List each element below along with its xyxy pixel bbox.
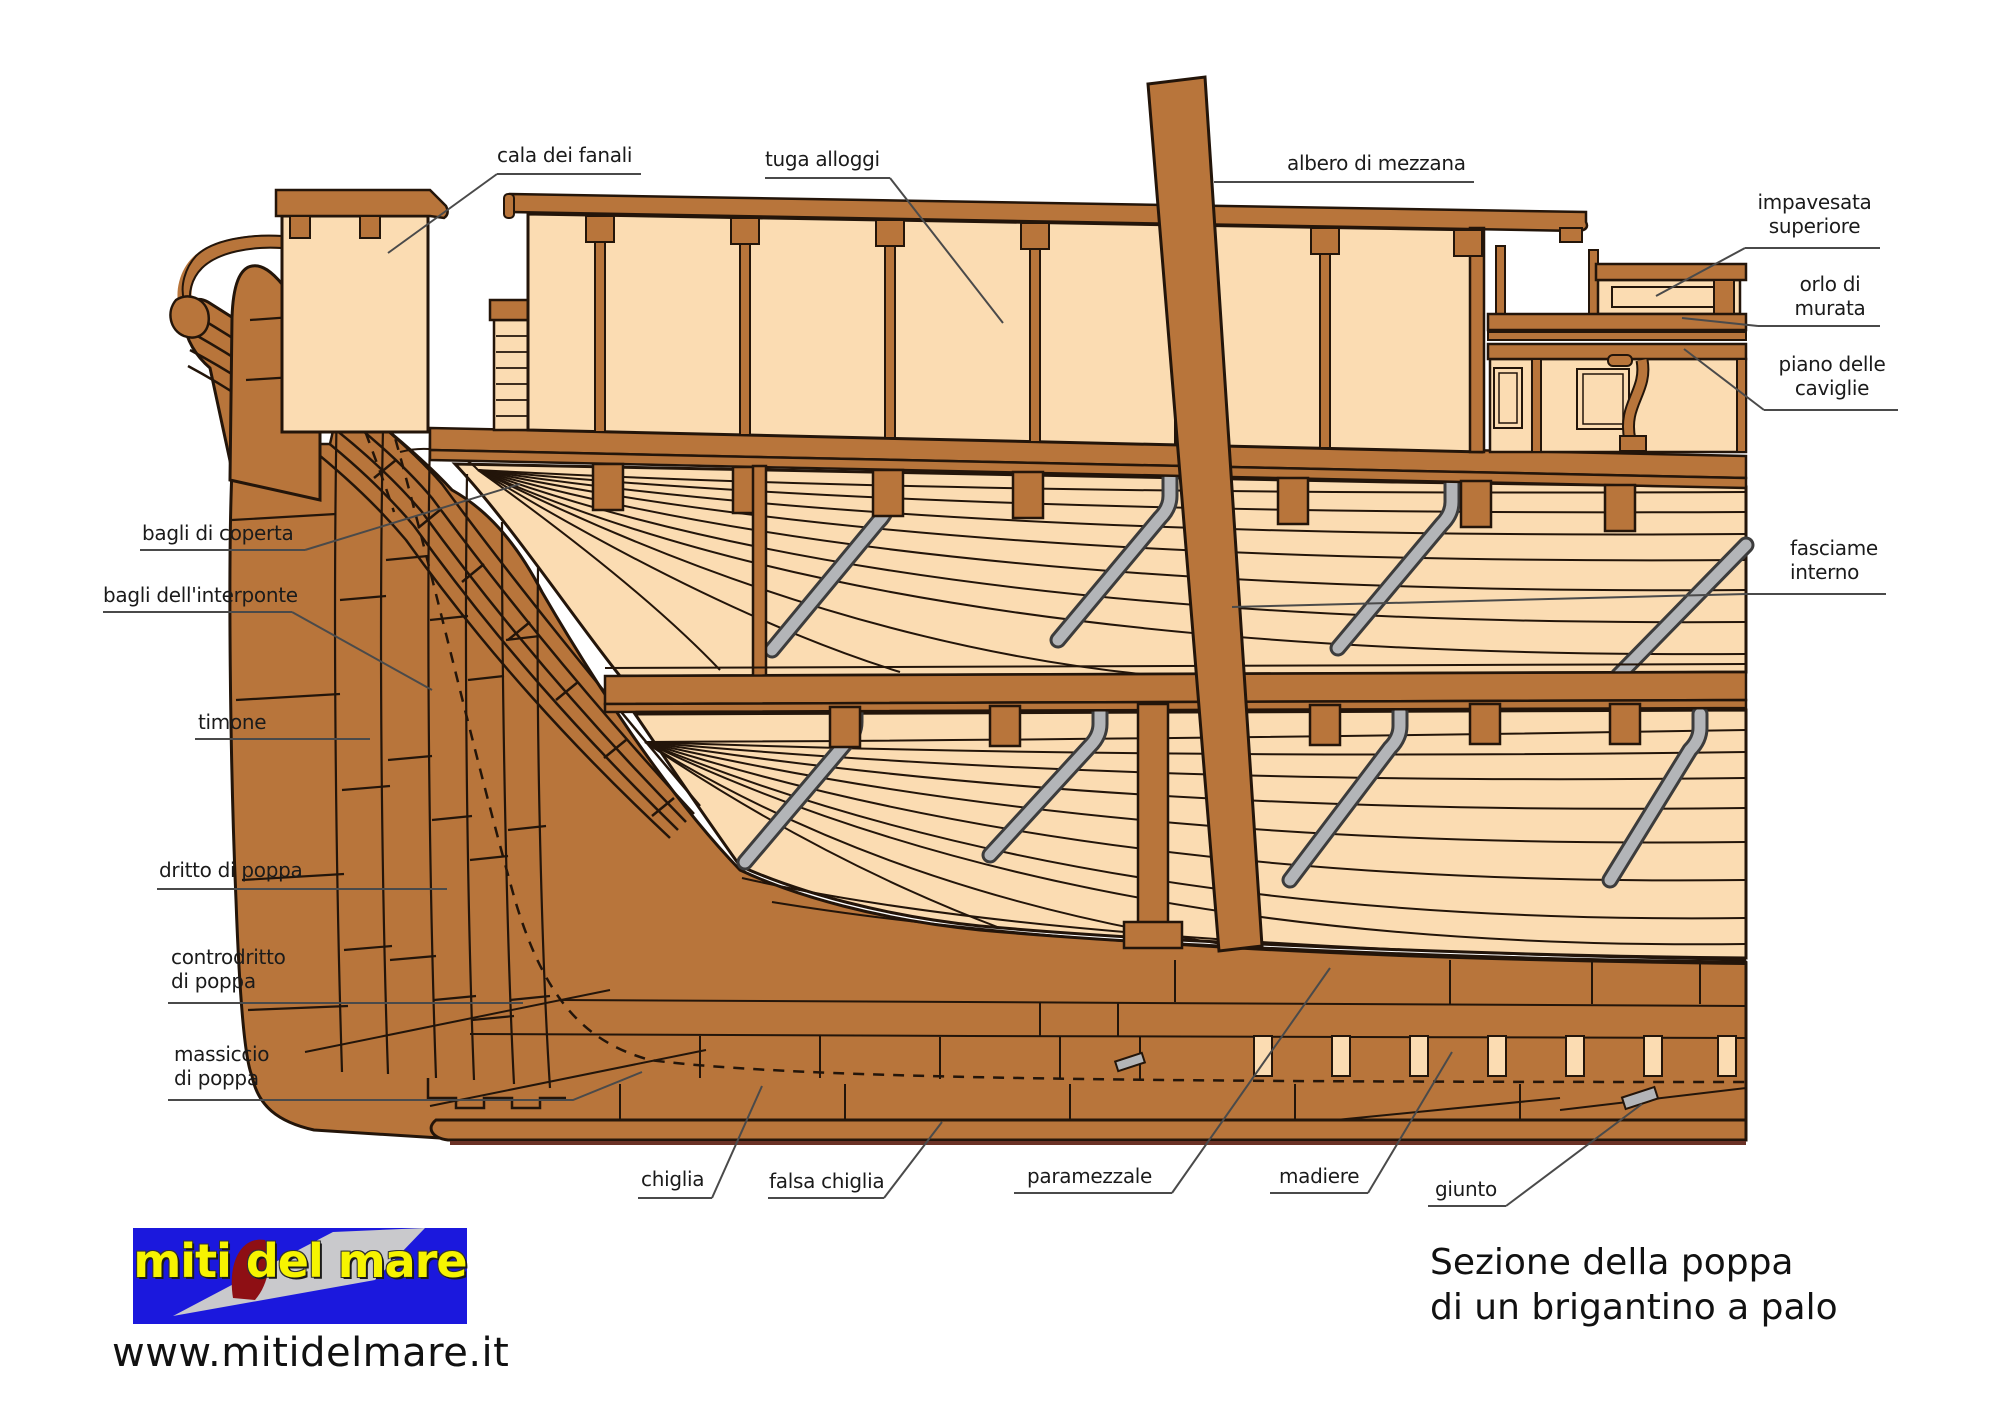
deckhouse-tuga-alloggi: [504, 194, 1587, 452]
cabin-cala-dei-fanali: [276, 190, 448, 432]
label-cala-dei-fanali: cala dei fanali: [497, 143, 632, 167]
diagram-page: cala dei fanali tuga alloggi albero di m…: [0, 0, 2000, 1418]
orlo-di-murata-band: [1488, 314, 1746, 340]
label-giunto: giunto: [1435, 1177, 1497, 1201]
label-falsa-chiglia: falsa chiglia: [769, 1169, 884, 1193]
label-fasciame-interno: fasciame interno: [1790, 536, 1878, 585]
label-albero-di-mezzana: albero di mezzana: [1287, 151, 1466, 175]
falsa-chiglia-strip: [431, 1120, 1746, 1140]
label-timone: timone: [198, 710, 266, 734]
diagram-title: Sezione della poppa di un brigantino a p…: [1430, 1240, 1838, 1330]
label-massiccio-di-poppa: massiccio di poppa: [174, 1042, 269, 1091]
label-chiglia: chiglia: [641, 1167, 704, 1191]
stern-horn: [170, 296, 208, 337]
logo-text: miti del mare: [133, 1234, 467, 1288]
label-dritto-di-poppa: dritto di poppa: [159, 858, 302, 882]
label-impavesata-superiore: impavesata superiore: [1742, 190, 1887, 239]
ship-section-diagram: [0, 0, 2000, 1418]
label-tuga-alloggi: tuga alloggi: [765, 147, 880, 171]
label-piano-delle-caviglie: piano delle caviglie: [1762, 352, 1902, 401]
website-link[interactable]: www.mitidelmare.it: [112, 1330, 509, 1376]
logo-mitidelmare: miti del mare: [133, 1228, 467, 1324]
poop-bulwark: [1488, 246, 1746, 452]
label-orlo-di-murata: orlo di murata: [1775, 272, 1885, 321]
label-controdritto-di-poppa: controdritto di poppa: [171, 945, 286, 994]
label-bagli-di-coperta: bagli di coperta: [142, 521, 293, 545]
label-paramezzale: paramezzale: [1027, 1164, 1152, 1188]
label-bagli-dell-interponte: bagli dell'interponte: [103, 583, 298, 607]
label-madiere: madiere: [1279, 1164, 1359, 1188]
